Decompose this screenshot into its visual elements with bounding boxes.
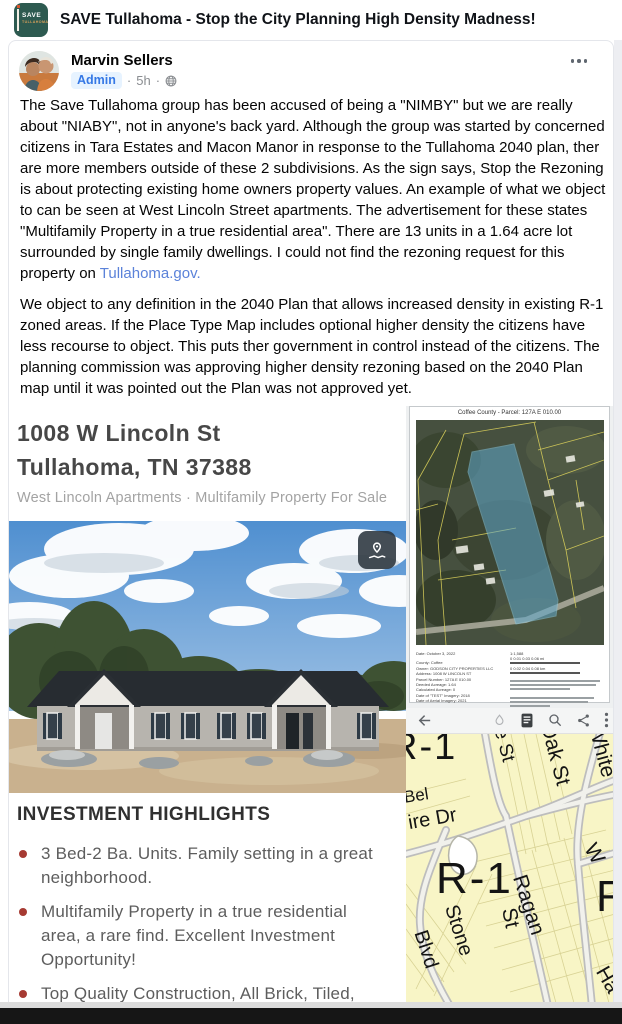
- listing-address-line1: 1008 W Lincoln St: [17, 420, 221, 447]
- author-avatar[interactable]: [19, 51, 59, 91]
- parcel-footer-details: Date: October 3, 2022 County: Coffee Own…: [416, 651, 504, 704]
- scale-mi: 0 0.01 0.03 0.06 mi: [510, 656, 604, 661]
- house-photo-graphic: [9, 521, 406, 793]
- group-title[interactable]: SAVE Tullahoma - Stop the City Planning …: [60, 11, 536, 29]
- bottom-black-bar: [0, 1008, 622, 1024]
- highlight-item: 3 Bed-2 Ba. Units. Family setting in a g…: [17, 842, 389, 890]
- search-icon[interactable]: [547, 712, 563, 728]
- street-label-bel: Bel: [406, 784, 430, 808]
- back-arrow-icon[interactable]: [416, 712, 433, 729]
- listing-address-line2: Tullahoma, TN 37388: [17, 454, 252, 481]
- page: SAVE TULLAHOMA SAVE Tullahoma - Stop the…: [0, 0, 622, 1024]
- parcel-title: Coffee County - Parcel: 127A E 010.00: [410, 410, 609, 416]
- map-view-button[interactable]: [358, 531, 396, 569]
- parcel-document: Coffee County - Parcel: 127A E 010.00: [409, 406, 610, 703]
- parcel-footer-scale: 1:1,588 0 0.01 0.03 0.06 mi 0 0.02 0.04 …: [510, 651, 604, 709]
- zone-label-r1-topleft: R-1: [406, 734, 457, 769]
- listing-panel: 1008 W Lincoln St Tullahoma, TN 37388 We…: [9, 406, 406, 1002]
- avatar-photo: [19, 51, 59, 91]
- reader-view-icon[interactable]: [520, 713, 534, 728]
- author-name[interactable]: Marvin Sellers: [71, 52, 173, 69]
- logo-stripe: [17, 9, 19, 31]
- zone-label-r1-center: R-1: [436, 854, 513, 904]
- post-menu-button[interactable]: [571, 59, 588, 63]
- post-paragraph-1: The Save Tullahoma group has been accuse…: [20, 95, 606, 284]
- overflow-menu-icon[interactable]: [604, 712, 609, 728]
- highlights-title: INVESTMENT HIGHLIGHTS: [17, 804, 270, 826]
- post-card: Marvin Sellers Admin · 5h · The Save Tul…: [8, 40, 614, 1002]
- admin-badge: Admin: [71, 72, 122, 89]
- post-meta: Admin · 5h ·: [71, 72, 177, 89]
- globe-icon: [165, 75, 177, 87]
- right-column: Coffee County - Parcel: 127A E 010.00: [406, 406, 614, 1002]
- highlights-list: 3 Bed-2 Ba. Units. Family setting in a g…: [17, 842, 389, 1002]
- annotate-icon[interactable]: [492, 713, 507, 728]
- page-gutter: [614, 40, 622, 1002]
- post-attachment-image[interactable]: 1008 W Lincoln St Tullahoma, TN 37388 We…: [9, 406, 614, 1002]
- highlight-item: Top Quality Construction, All Brick, Til…: [17, 982, 389, 1002]
- logo-accent: [17, 5, 20, 8]
- logo-text-tullahoma: TULLAHOMA: [22, 20, 48, 24]
- scale-km: 0 0.02 0.04 0.08 km: [510, 666, 604, 671]
- post-timestamp[interactable]: 5h: [136, 73, 150, 88]
- viewer-toolbar: [406, 708, 614, 734]
- group-header: SAVE TULLAHOMA SAVE Tullahoma - Stop the…: [0, 0, 622, 40]
- share-icon[interactable]: [576, 713, 591, 728]
- meta-dot: ·: [156, 73, 160, 88]
- zoning-map[interactable]: R-1 Bel ire Dr R-1 Stone Blvd St Ragan R…: [406, 734, 614, 1002]
- listing-subtitle: West Lincoln Apartments · Multifamily Pr…: [17, 490, 387, 506]
- map-pin-icon: [366, 539, 388, 561]
- parcel-footer-line: Date of Aerial Imagery: 2021: [416, 698, 504, 703]
- logo-text-save: SAVE: [22, 12, 41, 19]
- tullahoma-gov-link[interactable]: Tullahoma.gov.: [100, 265, 201, 282]
- highlight-item: Multifamily Property in a true residenti…: [17, 900, 389, 972]
- paragraph-text: The Save Tullahoma group has been accuse…: [20, 97, 605, 282]
- group-avatar[interactable]: SAVE TULLAHOMA: [14, 3, 48, 37]
- meta-dot: ·: [127, 73, 131, 88]
- post-paragraph-2: We object to any definition in the 2040 …: [20, 294, 606, 399]
- zone-label-r-right: R: [596, 872, 614, 922]
- property-photo: [9, 521, 406, 793]
- parcel-aerial-map: [416, 420, 604, 645]
